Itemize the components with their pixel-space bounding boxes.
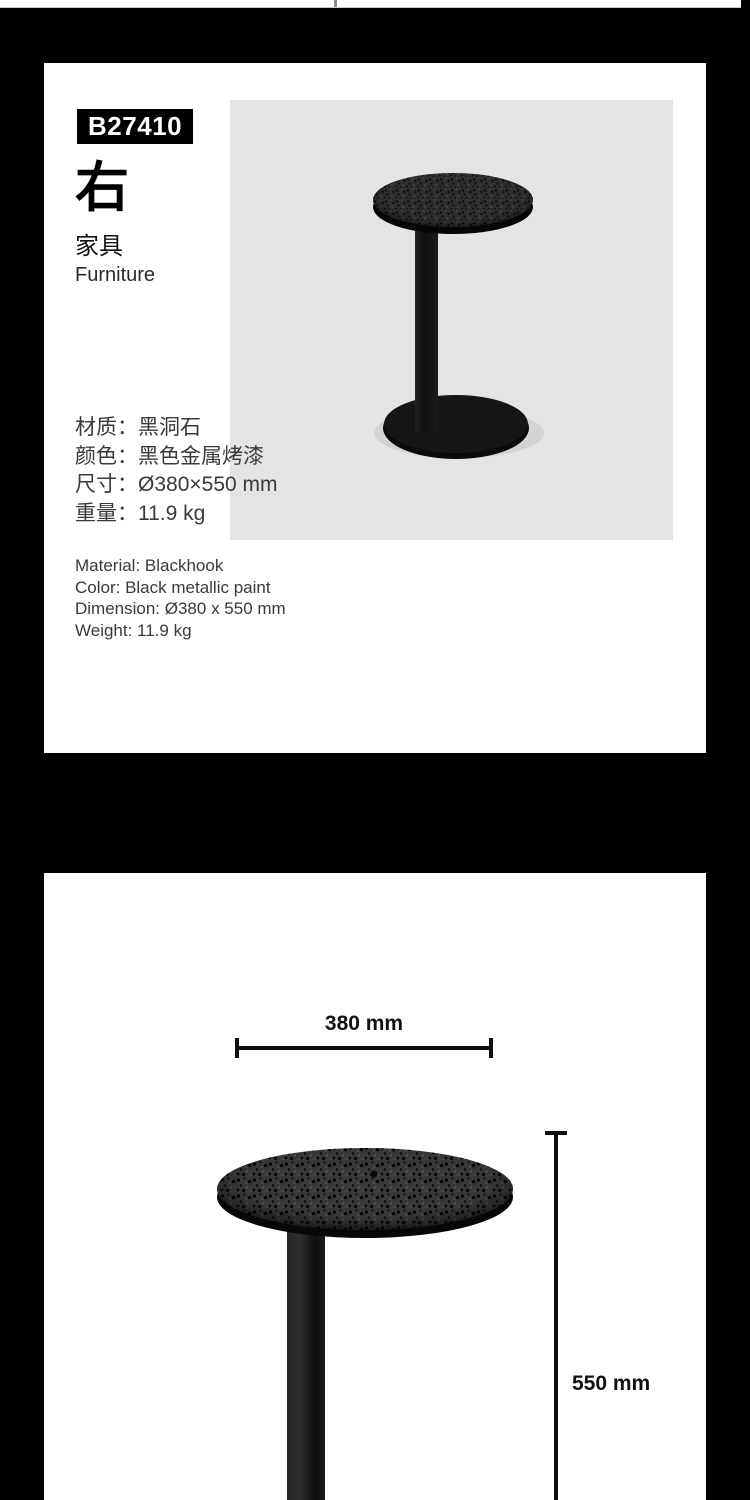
height-dimension-line [545, 1131, 567, 1500]
category-label-en: Furniture [75, 264, 155, 287]
specs-english: Material: Blackhook Color: Black metalli… [75, 555, 286, 641]
dimension-card: 380 mm 550 mm [44, 873, 706, 1500]
previous-photo-remnant [334, 0, 337, 7]
width-dimension-label: 380 mm [235, 1011, 493, 1036]
spec-weight-cn: 重量：11.9 kg [75, 500, 278, 529]
spec-material-cn: 材质：黑洞石 [75, 414, 278, 443]
spec-color-en: Color: Black metallic paint [75, 577, 286, 599]
product-detail-photo [44, 873, 706, 1500]
spec-dimension-cn: 尺寸：Ø380×550 mm [75, 471, 278, 500]
spec-color-cn: 颜色：黑色金属烤漆 [75, 443, 278, 472]
width-dimension-line [235, 1038, 493, 1058]
specs-chinese: 材质：黑洞石 颜色：黑色金属烤漆 尺寸：Ø380×550 mm 重量：11.9 … [75, 414, 278, 528]
category-label-cn: 家具 [75, 233, 123, 261]
spec-material-en: Material: Blackhook [75, 555, 286, 577]
spec-dimension-en: Dimension: Ø380 x 550 mm [75, 598, 286, 620]
sku-badge: B27410 [77, 109, 193, 144]
page-background: B27410 右 家具 Furniture [0, 0, 750, 1500]
product-name: 右 [75, 160, 129, 217]
height-dimension-label: 550 mm [572, 1371, 650, 1396]
previous-card-bottom-edge [0, 0, 741, 8]
product-info-card: B27410 右 家具 Furniture [44, 63, 706, 753]
spec-weight-en: Weight: 11.9 kg [75, 620, 286, 642]
side-table-illustration [230, 100, 673, 540]
product-photo [230, 100, 673, 540]
